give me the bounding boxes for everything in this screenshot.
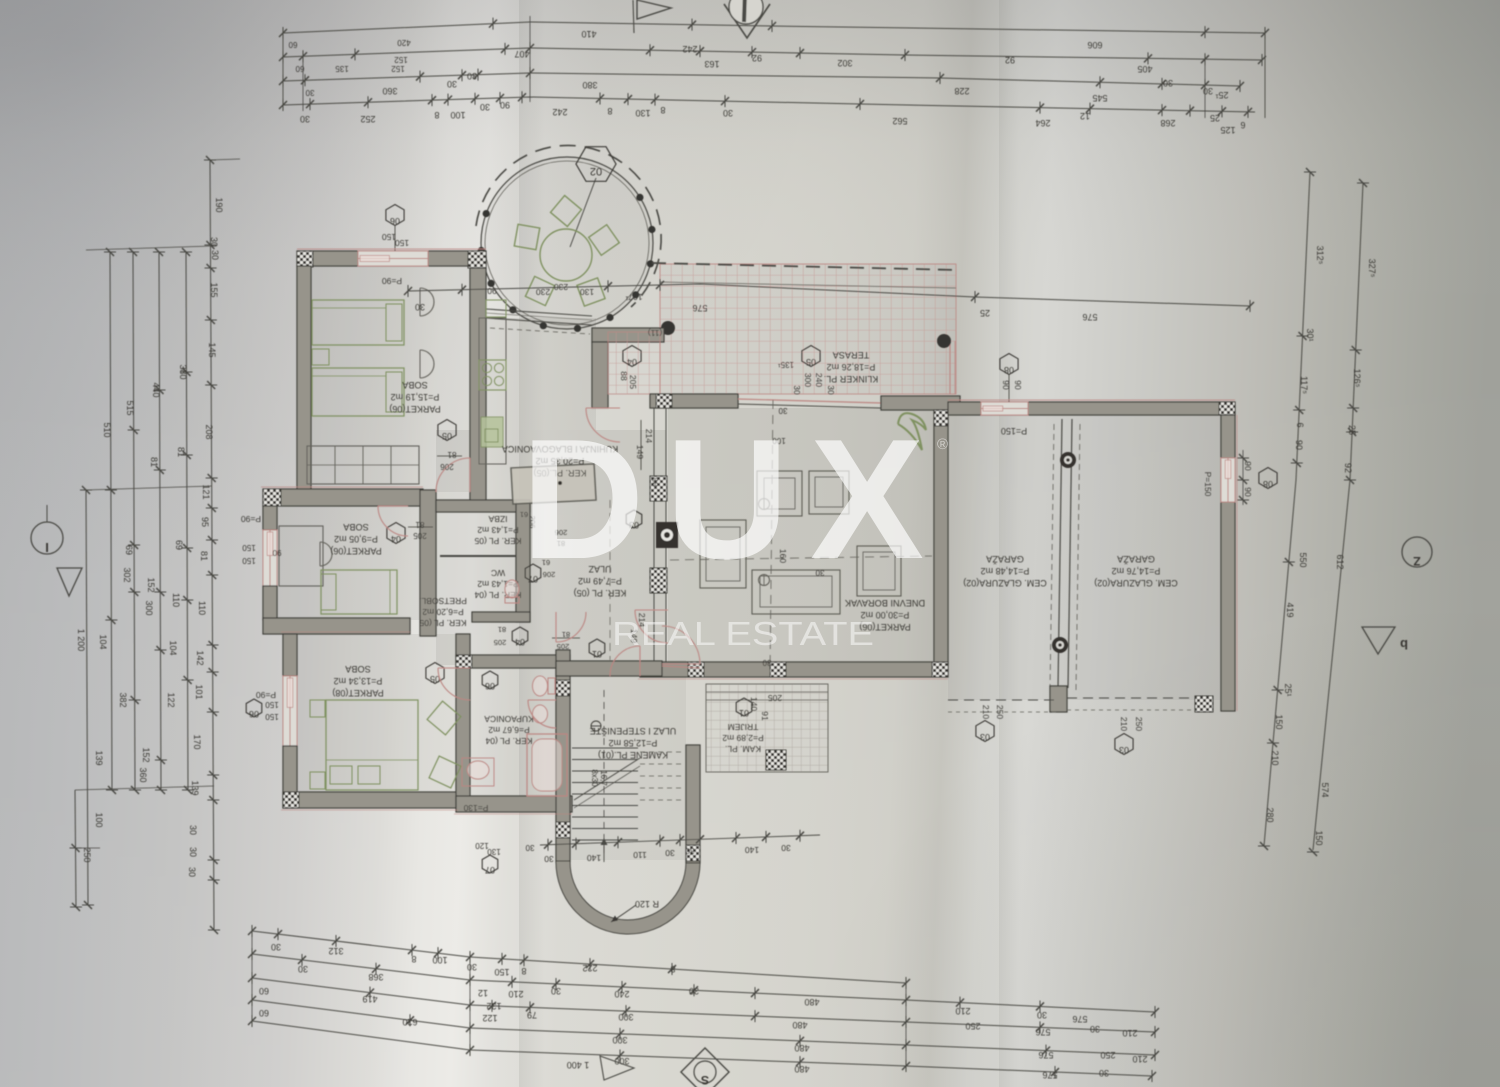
svg-text:480: 480 [804, 997, 819, 1007]
svg-text:410: 410 [581, 29, 596, 39]
svg-text:01: 01 [592, 649, 602, 659]
svg-text:8: 8 [521, 966, 526, 976]
svg-text:30: 30 [467, 962, 477, 972]
svg-text:576: 576 [1072, 1014, 1087, 1024]
svg-text:100: 100 [432, 955, 447, 965]
svg-text:KUPAONICA: KUPAONICA [484, 714, 534, 724]
svg-text:121: 121 [201, 484, 211, 499]
svg-text:(11): (11) [648, 328, 663, 338]
svg-text:92: 92 [1343, 463, 1353, 473]
svg-text:SOBA: SOBA [401, 380, 427, 390]
svg-text:8: 8 [670, 964, 675, 974]
svg-text:69: 69 [174, 540, 184, 550]
svg-text:122: 122 [166, 692, 176, 707]
svg-text:210: 210 [1270, 750, 1280, 765]
svg-text:140: 140 [587, 853, 601, 863]
svg-text:60: 60 [259, 986, 269, 996]
svg-text:576: 576 [1035, 1027, 1050, 1037]
svg-text:12: 12 [478, 988, 488, 998]
svg-text:150: 150 [1314, 830, 1324, 845]
svg-text:P=150: P=150 [1001, 426, 1027, 436]
svg-text:08: 08 [1004, 365, 1014, 375]
svg-text:550: 550 [1298, 552, 1308, 567]
svg-text:b: b [1400, 637, 1408, 652]
svg-text:480: 480 [794, 1064, 809, 1074]
svg-text:PRETSOBL.: PRETSOBL. [419, 596, 467, 606]
svg-text:92: 92 [752, 53, 762, 63]
svg-text:302: 302 [122, 567, 132, 582]
svg-text:8x30: 8x30 [590, 769, 599, 787]
svg-text:91: 91 [760, 711, 770, 721]
svg-text:60: 60 [288, 40, 297, 49]
svg-text:312⁵: 312⁵ [1315, 246, 1325, 265]
svg-text:8: 8 [411, 954, 416, 964]
svg-text:142: 142 [195, 650, 205, 665]
svg-text:210: 210 [981, 705, 991, 719]
svg-text:25: 25 [1210, 113, 1220, 123]
svg-text:230: 230 [536, 287, 550, 297]
svg-text:145: 145 [207, 342, 217, 357]
svg-text:163: 163 [704, 59, 719, 69]
svg-text:122: 122 [482, 1013, 497, 1023]
svg-text:30: 30 [762, 658, 771, 667]
svg-text:07: 07 [485, 865, 495, 875]
svg-text:90: 90 [1294, 440, 1304, 450]
svg-text:30: 30 [781, 843, 791, 853]
svg-text:PARKET(06): PARKET(06) [330, 546, 381, 556]
svg-text:205: 205 [494, 638, 507, 647]
svg-text:30: 30 [551, 986, 561, 996]
svg-text:510: 510 [102, 422, 112, 437]
svg-text:360: 360 [382, 86, 397, 96]
svg-text:104: 104 [98, 634, 108, 649]
svg-text:79: 79 [527, 1010, 537, 1020]
svg-text:150: 150 [242, 543, 256, 552]
svg-text:P=150: P=150 [1203, 472, 1213, 497]
svg-text:DNEVNI BORAVAK: DNEVNI BORAVAK [844, 598, 925, 608]
svg-text:130: 130 [580, 287, 594, 297]
svg-text:139: 139 [94, 750, 104, 765]
svg-text:95: 95 [200, 517, 210, 527]
svg-text:205: 205 [413, 531, 427, 540]
svg-text:30: 30 [1099, 1068, 1109, 1078]
svg-text:300: 300 [614, 1056, 629, 1066]
svg-text:30: 30 [209, 237, 219, 247]
svg-text:368: 368 [368, 972, 383, 982]
svg-text:04: 04 [627, 357, 637, 367]
svg-text:152: 152 [391, 64, 405, 73]
svg-text:30¹: 30¹ [1305, 328, 1315, 341]
svg-text:GARAŽA: GARAŽA [1116, 554, 1155, 564]
svg-text:30: 30 [792, 385, 802, 395]
svg-text:210: 210 [508, 989, 523, 999]
svg-text:30: 30 [1037, 1010, 1047, 1020]
svg-text:125: 125 [1220, 125, 1235, 135]
svg-text:101: 101 [194, 684, 204, 699]
svg-text:150: 150 [1274, 714, 1284, 729]
svg-text:150: 150 [395, 238, 409, 248]
svg-text:REAL ESTATE: REAL ESTATE [612, 615, 874, 652]
svg-text:6: 6 [1240, 120, 1245, 130]
svg-text:30: 30 [685, 846, 695, 856]
svg-text:8: 8 [660, 105, 665, 115]
svg-text:8: 8 [434, 110, 439, 120]
svg-text:312: 312 [328, 946, 343, 956]
svg-text:P=14,76 m2: P=14,76 m2 [1112, 566, 1161, 576]
svg-text:250: 250 [1134, 717, 1144, 731]
svg-text:150: 150 [382, 232, 396, 242]
svg-text:S: S [701, 1073, 709, 1087]
svg-text:576: 576 [692, 303, 707, 313]
svg-text:30: 30 [298, 964, 308, 974]
svg-text:264: 264 [1035, 118, 1050, 128]
svg-text:25¹: 25¹ [1283, 683, 1293, 696]
svg-text:KAM. PL.: KAM. PL. [725, 744, 761, 754]
svg-text:1 200: 1 200 [76, 629, 86, 652]
svg-text:06: 06 [249, 709, 259, 719]
svg-text:300: 300 [618, 1012, 633, 1022]
svg-text:135: 135 [335, 64, 349, 73]
svg-text:25: 25 [1347, 425, 1357, 435]
svg-text:CEM. GLAZURA(02): CEM. GLAZURA(02) [1094, 578, 1178, 588]
svg-text:30: 30 [188, 825, 198, 835]
svg-text:81: 81 [149, 457, 159, 467]
svg-text:90: 90 [272, 548, 281, 557]
svg-text:240: 240 [814, 373, 824, 387]
svg-text:60: 60 [259, 1008, 269, 1018]
svg-text:SOBA: SOBA [344, 664, 370, 674]
svg-text:420: 420 [397, 38, 411, 47]
svg-text:CEM. GLAZURA(02): CEM. GLAZURA(02) [963, 578, 1047, 588]
svg-text:P=14,48 m2: P=14,48 m2 [981, 566, 1030, 576]
svg-text:6: 6 [1295, 422, 1305, 427]
svg-text:268: 268 [1160, 118, 1175, 128]
svg-text:30: 30 [1090, 1024, 1100, 1034]
svg-text:190: 190 [214, 197, 224, 212]
svg-text:130: 130 [635, 108, 650, 118]
svg-text:®: ® [937, 436, 948, 453]
svg-text:TERASA: TERASA [832, 350, 870, 360]
svg-text:250: 250 [995, 705, 1005, 719]
svg-text:576: 576 [1042, 1070, 1057, 1080]
svg-text:242: 242 [682, 44, 697, 54]
svg-text:110: 110 [633, 850, 647, 860]
svg-text:30: 30 [689, 986, 699, 996]
svg-text:P=90: P=90 [241, 514, 261, 524]
svg-text:152: 152 [146, 577, 156, 592]
svg-text:30: 30 [305, 88, 314, 97]
svg-text:170: 170 [192, 734, 202, 749]
svg-text:30: 30 [723, 108, 733, 118]
svg-text:90: 90 [1243, 487, 1253, 497]
svg-text:222: 222 [582, 963, 597, 973]
svg-text:88: 88 [619, 371, 629, 381]
svg-text:05: 05 [806, 357, 816, 367]
svg-text:210: 210 [1132, 1054, 1147, 1064]
svg-text:P=15,19 m2: P=15,19 m2 [391, 392, 440, 402]
svg-text:PARKET(08): PARKET(08) [332, 688, 383, 698]
svg-text:206: 206 [440, 462, 454, 471]
svg-text:252: 252 [360, 114, 375, 124]
svg-text:440: 440 [151, 382, 161, 397]
svg-text:574: 574 [1320, 782, 1330, 797]
svg-text:DUX: DUX [521, 404, 945, 595]
svg-text:01: 01 [739, 708, 749, 718]
svg-text:GARAŽA: GARAŽA [985, 554, 1024, 564]
svg-text:242: 242 [552, 107, 567, 117]
svg-text:140: 140 [749, 697, 759, 711]
svg-text:419: 419 [1285, 602, 1295, 617]
svg-text:ULAZ I STEPENIŠTE: ULAZ I STEPENIŠTE [590, 726, 677, 736]
svg-text:606: 606 [1087, 40, 1102, 50]
svg-text:81: 81 [176, 447, 186, 457]
svg-text:250: 250 [1100, 1050, 1115, 1060]
svg-text:135¹: 135¹ [778, 360, 794, 369]
svg-text:545: 545 [1092, 93, 1107, 103]
svg-text:327⁵: 327⁵ [1367, 259, 1377, 278]
svg-text:12: 12 [1080, 111, 1090, 121]
svg-text:382: 382 [118, 692, 128, 707]
svg-text:30: 30 [415, 302, 425, 312]
svg-text:300: 300 [612, 1035, 627, 1045]
svg-text:380: 380 [582, 80, 597, 90]
svg-text:576: 576 [1082, 312, 1097, 322]
svg-text:130: 130 [487, 847, 501, 856]
svg-text:612: 612 [1335, 554, 1345, 569]
svg-text:240: 240 [614, 989, 629, 999]
svg-text:562: 562 [892, 116, 907, 126]
svg-text:06: 06 [390, 216, 400, 226]
svg-text:90: 90 [500, 100, 510, 110]
svg-text:155: 155 [209, 282, 219, 297]
svg-text:IZBA: IZBA [488, 514, 507, 524]
svg-text:KER. PL (05: KER. PL (05 [419, 618, 466, 628]
svg-text:25¹: 25¹ [1215, 90, 1228, 100]
svg-text:TRIJEM: TRIJEM [728, 722, 759, 732]
svg-text:302: 302 [837, 58, 852, 68]
svg-text:380: 380 [178, 364, 188, 379]
svg-text:P=9,05 m2: P=9,05 m2 [334, 534, 378, 544]
svg-text:90: 90 [487, 286, 497, 296]
svg-text:R 120: R 120 [635, 899, 659, 909]
svg-text:P=6,20 m2: P=6,20 m2 [422, 607, 464, 617]
svg-text:P=2,89 m2: P=2,89 m2 [722, 733, 764, 743]
svg-text:30: 30 [544, 854, 554, 864]
svg-text:KER. PL (04: KER. PL (04 [485, 736, 532, 746]
svg-text:110: 110 [171, 593, 181, 607]
svg-text:KAMENE PL.(01): KAMENE PL.(01) [598, 750, 668, 760]
svg-text:08: 08 [1263, 479, 1273, 489]
svg-text:300: 300 [803, 373, 813, 387]
svg-text:210: 210 [1122, 1028, 1137, 1038]
svg-text:126⁵: 126⁵ [1352, 369, 1362, 388]
svg-text:8: 8 [607, 106, 612, 116]
svg-text:104: 104 [168, 640, 178, 655]
svg-text:30: 30 [271, 942, 281, 952]
svg-text:90: 90 [1243, 461, 1253, 471]
svg-text:576: 576 [1038, 1050, 1053, 1060]
svg-text:30: 30 [188, 847, 198, 857]
svg-text:407: 407 [514, 49, 529, 59]
svg-text:139: 139 [190, 780, 200, 795]
svg-text:100: 100 [450, 110, 465, 120]
svg-text:405: 405 [1137, 64, 1152, 74]
svg-text:I: I [45, 540, 49, 555]
svg-text:06: 06 [485, 681, 495, 691]
svg-text:228: 228 [954, 86, 969, 96]
svg-text:480: 480 [794, 1043, 809, 1053]
svg-text:110: 110 [197, 601, 207, 615]
svg-text:P=13,34 m2: P=13,34 m2 [334, 676, 383, 686]
svg-text:208: 208 [204, 424, 214, 439]
svg-text:150: 150 [242, 556, 256, 565]
svg-text:419: 419 [362, 994, 377, 1004]
svg-text:280: 280 [1265, 807, 1275, 822]
svg-text:30: 30 [1163, 78, 1173, 88]
svg-text:KER. PL (05: KER. PL (05 [474, 536, 521, 546]
svg-text:WC: WC [491, 568, 505, 578]
svg-text:1 400: 1 400 [567, 1060, 590, 1070]
svg-text:132: 132 [486, 1001, 501, 1011]
svg-text:P=12,58 m2: P=12,58 m2 [609, 738, 658, 748]
svg-text:140: 140 [745, 845, 759, 855]
svg-text:30: 30 [480, 102, 490, 112]
svg-text:P=130: P=130 [463, 803, 488, 813]
svg-text:30: 30 [300, 114, 310, 124]
svg-text:25: 25 [980, 308, 990, 318]
svg-text:P=18,26 m2: P=18,26 m2 [827, 362, 876, 372]
svg-text:205: 205 [628, 375, 638, 389]
svg-text:210: 210 [1119, 717, 1129, 731]
svg-text:205: 205 [557, 642, 570, 651]
svg-text:250: 250 [82, 847, 92, 862]
svg-text:03: 03 [980, 732, 990, 742]
svg-text:30: 30 [1203, 86, 1213, 96]
svg-text:30: 30 [187, 867, 197, 877]
svg-text:620: 620 [402, 1017, 417, 1027]
svg-text:515: 515 [125, 400, 135, 415]
svg-text:90: 90 [1001, 380, 1011, 390]
svg-text:117⁵: 117⁵ [1299, 376, 1309, 394]
svg-text:120: 120 [475, 841, 489, 850]
svg-text:90: 90 [1013, 380, 1023, 390]
svg-text:SOBA: SOBA [342, 522, 368, 532]
svg-text:PARKET(06): PARKET(06) [389, 404, 440, 414]
svg-text:P=6,67 m2: P=6,67 m2 [488, 725, 530, 735]
svg-text:152: 152 [141, 747, 151, 762]
svg-text:30: 30 [665, 848, 675, 858]
svg-text:92: 92 [1005, 55, 1015, 65]
svg-text:30: 30 [826, 385, 836, 395]
svg-text:150: 150 [265, 700, 279, 709]
svg-text:81: 81 [199, 551, 209, 561]
svg-text:30: 30 [210, 250, 220, 260]
svg-text:210: 210 [955, 1006, 970, 1016]
svg-text:30: 30 [447, 79, 457, 89]
svg-text:P=90: P=90 [256, 690, 276, 700]
svg-text:205: 205 [768, 693, 782, 703]
svg-text:30: 30 [525, 843, 534, 852]
svg-text:250: 250 [965, 1021, 980, 1031]
svg-text:03: 03 [1119, 745, 1129, 755]
svg-text:04: 04 [515, 637, 525, 647]
svg-text:300: 300 [144, 600, 154, 615]
svg-text:P=1,43 m2: P=1,43 m2 [477, 525, 519, 535]
svg-text:152: 152 [394, 55, 408, 64]
svg-text:360: 360 [138, 767, 148, 782]
svg-text:04: 04 [391, 534, 401, 544]
svg-text:150: 150 [494, 967, 509, 977]
svg-text:P=90: P=90 [382, 276, 402, 286]
svg-text:KLINKER PL.: KLINKER PL. [824, 374, 879, 384]
svg-text:81: 81 [415, 520, 424, 529]
svg-text:69: 69 [124, 545, 134, 555]
svg-text:05: 05 [442, 431, 452, 441]
svg-text:16,7: 16,7 [599, 770, 608, 786]
svg-text:81: 81 [447, 450, 456, 459]
svg-text:30: 30 [467, 71, 477, 81]
svg-text:Z: Z [1413, 554, 1420, 568]
svg-text:81: 81 [498, 625, 506, 634]
svg-text:100: 100 [94, 812, 104, 827]
svg-text:480: 480 [792, 1020, 807, 1030]
svg-text:107¹: 107¹ [625, 292, 642, 302]
svg-text:150: 150 [265, 712, 279, 721]
svg-text:02: 02 [590, 165, 602, 177]
